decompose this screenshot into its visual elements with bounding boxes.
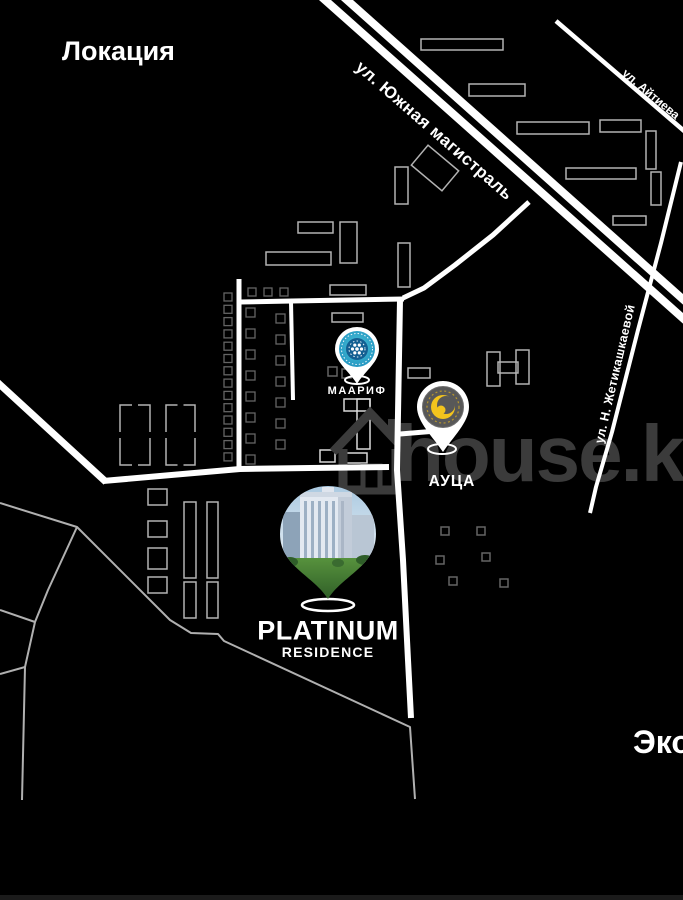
maarif-pin-icon [335, 327, 379, 384]
auca-pin-label: АУЦА [429, 473, 476, 491]
road-lower-horizontal-road [103, 467, 389, 481]
road-left-diagonal-road [0, 381, 106, 482]
platinum-pin-title: PLATINUM [257, 616, 398, 647]
page-title: Локация [62, 36, 175, 67]
platinum-pin-subtitle: RESIDENCE [282, 644, 374, 660]
road-big-vertical-road [397, 300, 411, 718]
bottom-edge-strip [0, 895, 683, 900]
road-mid-vertical-stub [291, 302, 293, 400]
road-south-highway-line-2 [338, 0, 683, 302]
location-map: house.kg [0, 0, 683, 900]
road-curve-to-highway [403, 202, 529, 298]
road-thin-road-d [0, 610, 35, 622]
maarif-pin-label: МААРИФ [328, 385, 387, 397]
edge-street-label: Эко [633, 724, 683, 761]
street-label-south-highway: ул. Южная магистраль [351, 57, 516, 205]
road-thin-road-b [22, 527, 77, 800]
road-south-highway-line-1 [316, 0, 683, 321]
road-thin-road-c [0, 667, 25, 674]
platinum-pin-icon [278, 484, 378, 611]
road-aytieva-road [556, 21, 683, 136]
road-mid-horizontal-road [240, 299, 404, 302]
street-label-aytieva: ул. Айтиева [619, 66, 682, 122]
